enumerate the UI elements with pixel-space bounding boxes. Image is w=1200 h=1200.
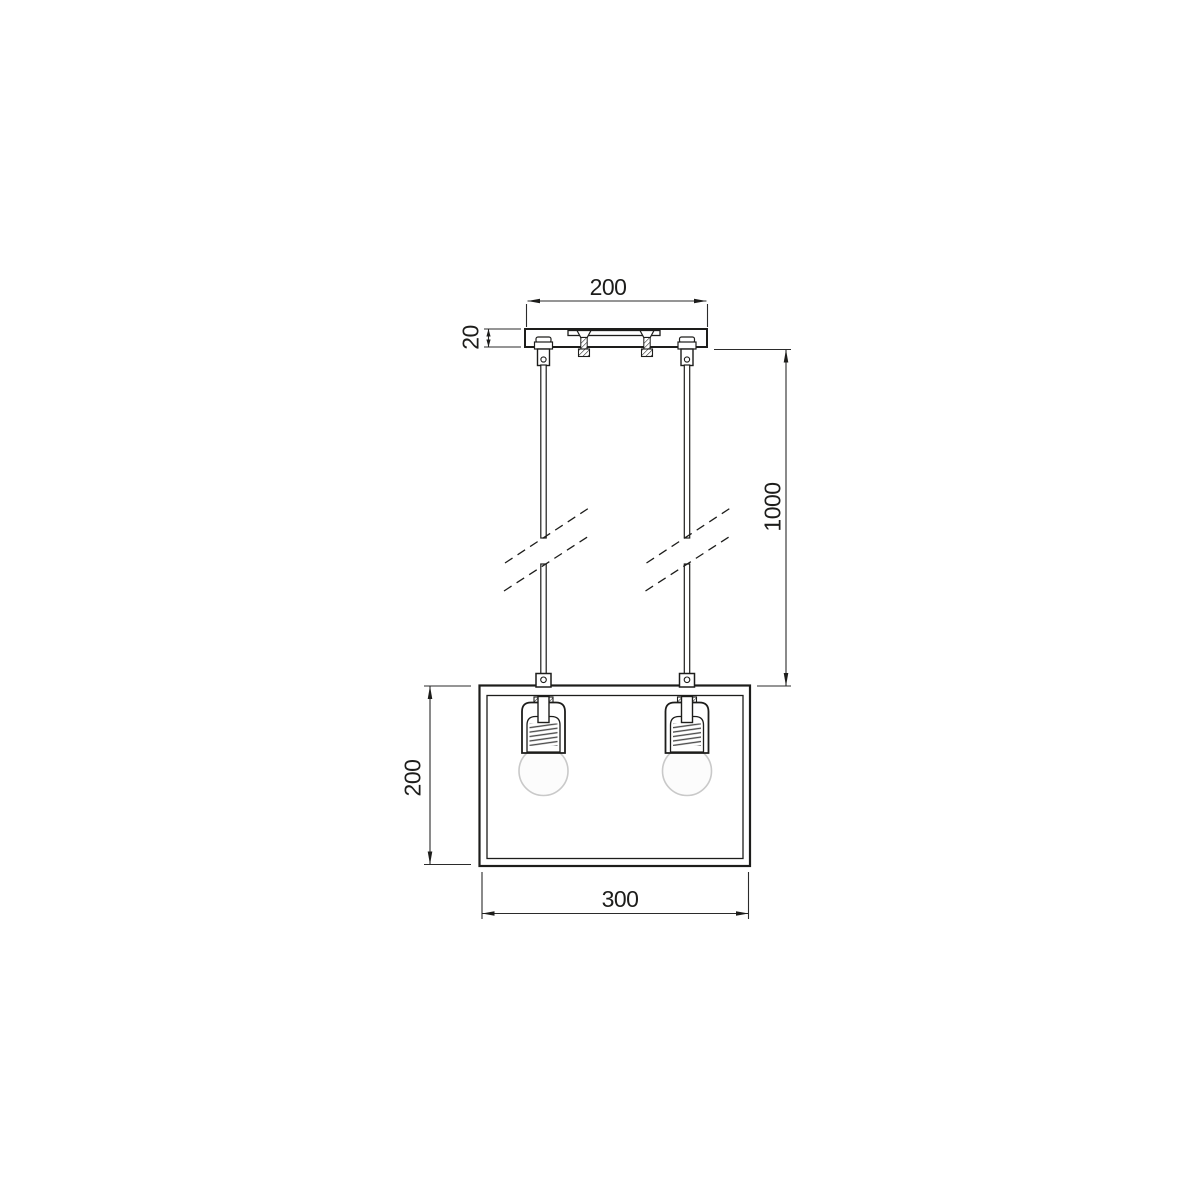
dimension-label-shade-width: 300 bbox=[602, 886, 639, 912]
arrowhead-down-icon bbox=[486, 340, 490, 348]
dimension-suspension-length: 1000 bbox=[714, 350, 791, 687]
lamp-assembly-left bbox=[519, 697, 568, 796]
rod-left-upper bbox=[541, 365, 546, 538]
extension-lines bbox=[527, 304, 708, 327]
ceiling-canopy bbox=[525, 329, 707, 366]
rod-connector-left bbox=[536, 674, 551, 688]
dimension-shade-height: 200 bbox=[400, 686, 472, 865]
break-mark-left-lower bbox=[504, 534, 592, 591]
arrowhead-left-icon bbox=[482, 911, 495, 916]
rod-holder-right bbox=[678, 337, 696, 366]
dimension-canopy-width: 200 bbox=[527, 274, 708, 327]
suspension-rods bbox=[541, 365, 690, 698]
dimension-label-canopy-height: 20 bbox=[458, 325, 484, 350]
arrowhead-right-icon bbox=[694, 299, 707, 304]
rod-connector-right bbox=[680, 674, 695, 688]
arrowhead-up-icon bbox=[428, 686, 433, 699]
extension-lines bbox=[424, 686, 471, 865]
dimension-label-canopy-width: 200 bbox=[590, 274, 627, 300]
rod-right-upper bbox=[684, 365, 689, 538]
dimension-shade-width: 300 bbox=[482, 872, 749, 919]
technical-drawing-canvas: 200 20 1000 200 bbox=[0, 0, 1200, 1200]
arrowhead-up-icon bbox=[784, 350, 789, 363]
extension-lines bbox=[484, 329, 521, 347]
pendant-lamp-dimension-drawing: 200 20 1000 200 bbox=[0, 0, 1200, 1200]
break-marks bbox=[504, 506, 734, 591]
rod-holder-left bbox=[535, 337, 553, 366]
lamp-assembly-right bbox=[663, 697, 712, 796]
dimension-canopy-height: 20 bbox=[458, 325, 522, 350]
arrowhead-right-icon bbox=[736, 911, 749, 916]
dimension-label-suspension-length: 1000 bbox=[760, 482, 786, 531]
break-mark-left-upper bbox=[505, 506, 592, 563]
arrowhead-left-icon bbox=[528, 299, 541, 304]
arrowhead-up-icon bbox=[486, 329, 490, 337]
dimension-label-shade-height: 200 bbox=[400, 760, 426, 797]
arrowhead-down-icon bbox=[428, 852, 433, 865]
arrowhead-down-icon bbox=[784, 673, 789, 686]
